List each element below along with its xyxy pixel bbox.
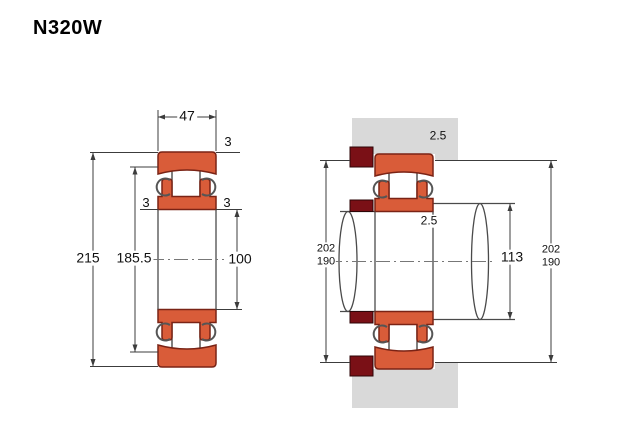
dim-raceway-diameter-label: 185.5 [114, 251, 153, 266]
dim-outer-chamfer-label: 3 [222, 135, 233, 149]
bearing-top-half [157, 152, 216, 210]
dim-width-label: 47 [177, 109, 197, 124]
dim-right-abutment-min: 190 [542, 256, 560, 269]
dim-housing-fillet-label: 2.5 [428, 130, 449, 143]
housing-abutment-bottom [350, 356, 373, 376]
shaft-abutment-top [350, 200, 373, 212]
dim-outer-diameter-label: 215 [74, 251, 101, 266]
dim-inner-chamfer-right-label: 3 [221, 196, 232, 210]
dim-left-abutment-label: 202 190 [316, 242, 336, 267]
dim-right-abutment-max: 202 [542, 243, 560, 256]
left-view-cross-section [90, 110, 242, 367]
shaft-abutment-bottom [350, 312, 373, 324]
dim-shaft-abutment-label: 113 [499, 250, 525, 265]
housing-abutment-top [350, 147, 373, 167]
dim-left-abutment-max: 202 [317, 242, 335, 255]
dim-bore-diameter-label: 100 [226, 252, 253, 267]
dim-inner-chamfer-left-label: 3 [140, 196, 151, 210]
dim-right-abutment-label: 202 190 [541, 243, 561, 268]
dim-left-abutment-min: 190 [317, 255, 335, 268]
bearing-top-half [374, 154, 433, 212]
dim-shaft-fillet-label: 2.5 [419, 215, 440, 228]
bearing-drawing-page: N320W 47 3 3 3 215 185.5 100 2.5 2.5 202… [0, 0, 640, 440]
bearing-bottom-half [374, 312, 433, 370]
page-title: N320W [33, 17, 102, 40]
drawing-linework [0, 0, 640, 440]
bearing-bottom-half [157, 310, 216, 368]
